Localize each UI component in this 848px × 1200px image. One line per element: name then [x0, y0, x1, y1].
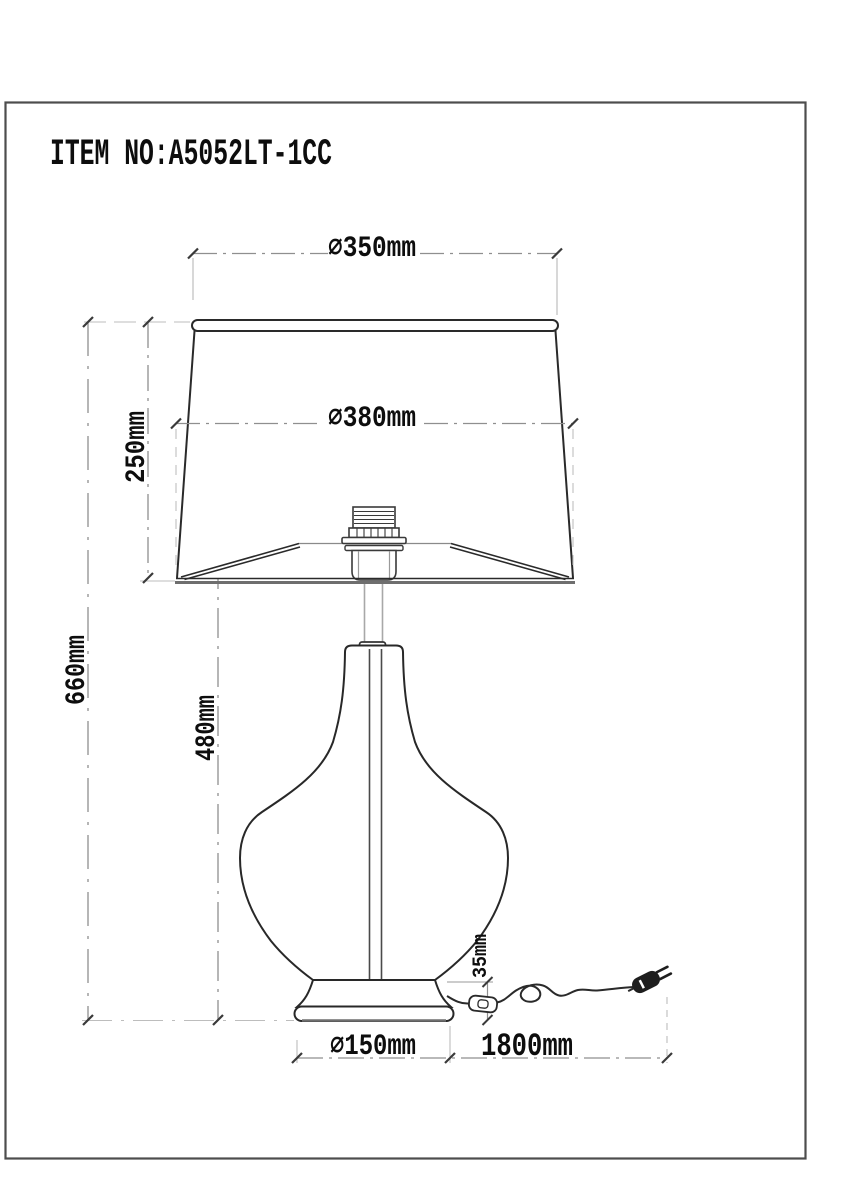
shade-bottom-diameter-label: ∅380mm	[328, 402, 416, 436]
switch-button	[478, 999, 489, 1008]
base-diameter-label: ∅150mm	[330, 1030, 416, 1064]
lamp-dimension-drawing: ITEM NO:A5052LT-1CC ∅350mm 660mm 250mm 4…	[0, 0, 848, 1200]
base-pedestal	[297, 980, 451, 1007]
shade-height-label: 250mm	[122, 411, 153, 483]
total-height-label: 660mm	[62, 635, 93, 705]
cord-exit-height-label: 35mm	[470, 934, 493, 978]
cord-length-label: 1800mm	[481, 1028, 573, 1065]
item-number-title: ITEM NO:A5052LT-1CC	[50, 134, 332, 176]
body-height-label: 480mm	[192, 695, 223, 761]
base-plate	[295, 1007, 454, 1022]
technical-drawing-page: ITEM NO:A5052LT-1CC ∅350mm 660mm 250mm 4…	[0, 0, 848, 1200]
shade-top-diameter-label: ∅350mm	[328, 232, 416, 266]
neck-fill	[365, 584, 382, 643]
socket-flange	[342, 538, 406, 544]
lamp-base	[295, 980, 454, 1021]
inline-switch	[468, 995, 497, 1013]
shade-top-rim	[192, 320, 558, 331]
socket-threaded-cap	[353, 507, 395, 528]
